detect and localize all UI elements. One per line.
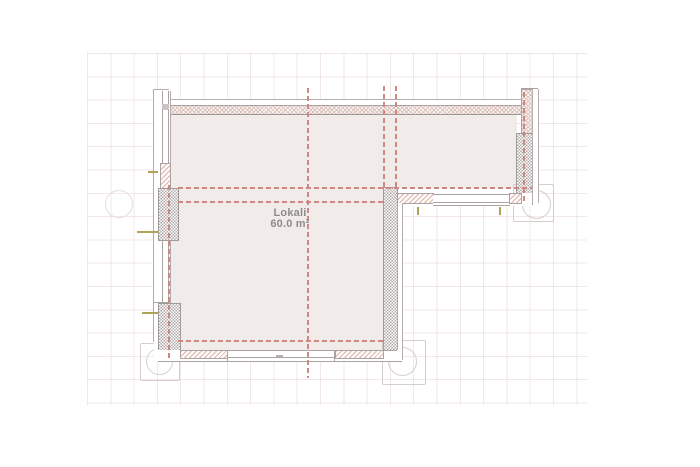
wall-bottom-hatch-right (335, 350, 384, 359)
window-bottom-cap-a (227, 350, 228, 361)
axis-line-horizontal-lower (178, 340, 383, 342)
window-left-joint-block (162, 104, 169, 110)
axis-line-vertical-mid-a (383, 86, 385, 190)
axis-line-horizontal-upper-b (178, 201, 385, 203)
wall-left-top-cap (153, 89, 169, 90)
window-tick-wing-1 (417, 207, 419, 215)
room-area: 60.0 m² (240, 219, 340, 229)
window-bottom-center-mark (276, 355, 283, 357)
window-left-lower-glass-a (162, 240, 163, 303)
axis-line-vertical-center (307, 88, 309, 378)
wall-middle-outer-band (397, 203, 403, 360)
window-left-upper-glass-a (162, 91, 163, 163)
column-symbol-circle-left (105, 190, 133, 218)
wall-right-outer-band (532, 89, 539, 203)
window-wing-glass-b (433, 205, 510, 206)
floor-plan-canvas: Lokali 60.0 m² (0, 0, 700, 467)
axis-line-vertical-mid-b (395, 86, 397, 190)
axis-line-vertical-left-wall (168, 185, 170, 360)
wall-bottom-hatch-left (180, 350, 228, 359)
window-tick-left-1 (148, 171, 158, 173)
axis-line-horizontal-upper-a (178, 187, 532, 189)
wall-left-outer-line (153, 89, 154, 342)
window-left-upper-glass-b (168, 91, 169, 163)
wall-top-hatch (170, 105, 532, 115)
room-label: Lokali 60.0 m² (240, 208, 340, 229)
window-bottom-cap-b (334, 350, 335, 361)
room-name: Lokali (240, 208, 340, 218)
wall-middle-pier (383, 187, 398, 359)
window-bottom-glass-b (158, 361, 402, 362)
wall-top (170, 99, 532, 115)
window-wing-glass-a (433, 202, 510, 203)
window-bottom-glass-a (227, 357, 335, 358)
window-tick-left-3 (142, 312, 158, 314)
window-tick-wing-2 (499, 207, 501, 215)
window-tick-left-2 (137, 231, 158, 233)
wall-wing-bottom-hatch-right (509, 193, 522, 204)
